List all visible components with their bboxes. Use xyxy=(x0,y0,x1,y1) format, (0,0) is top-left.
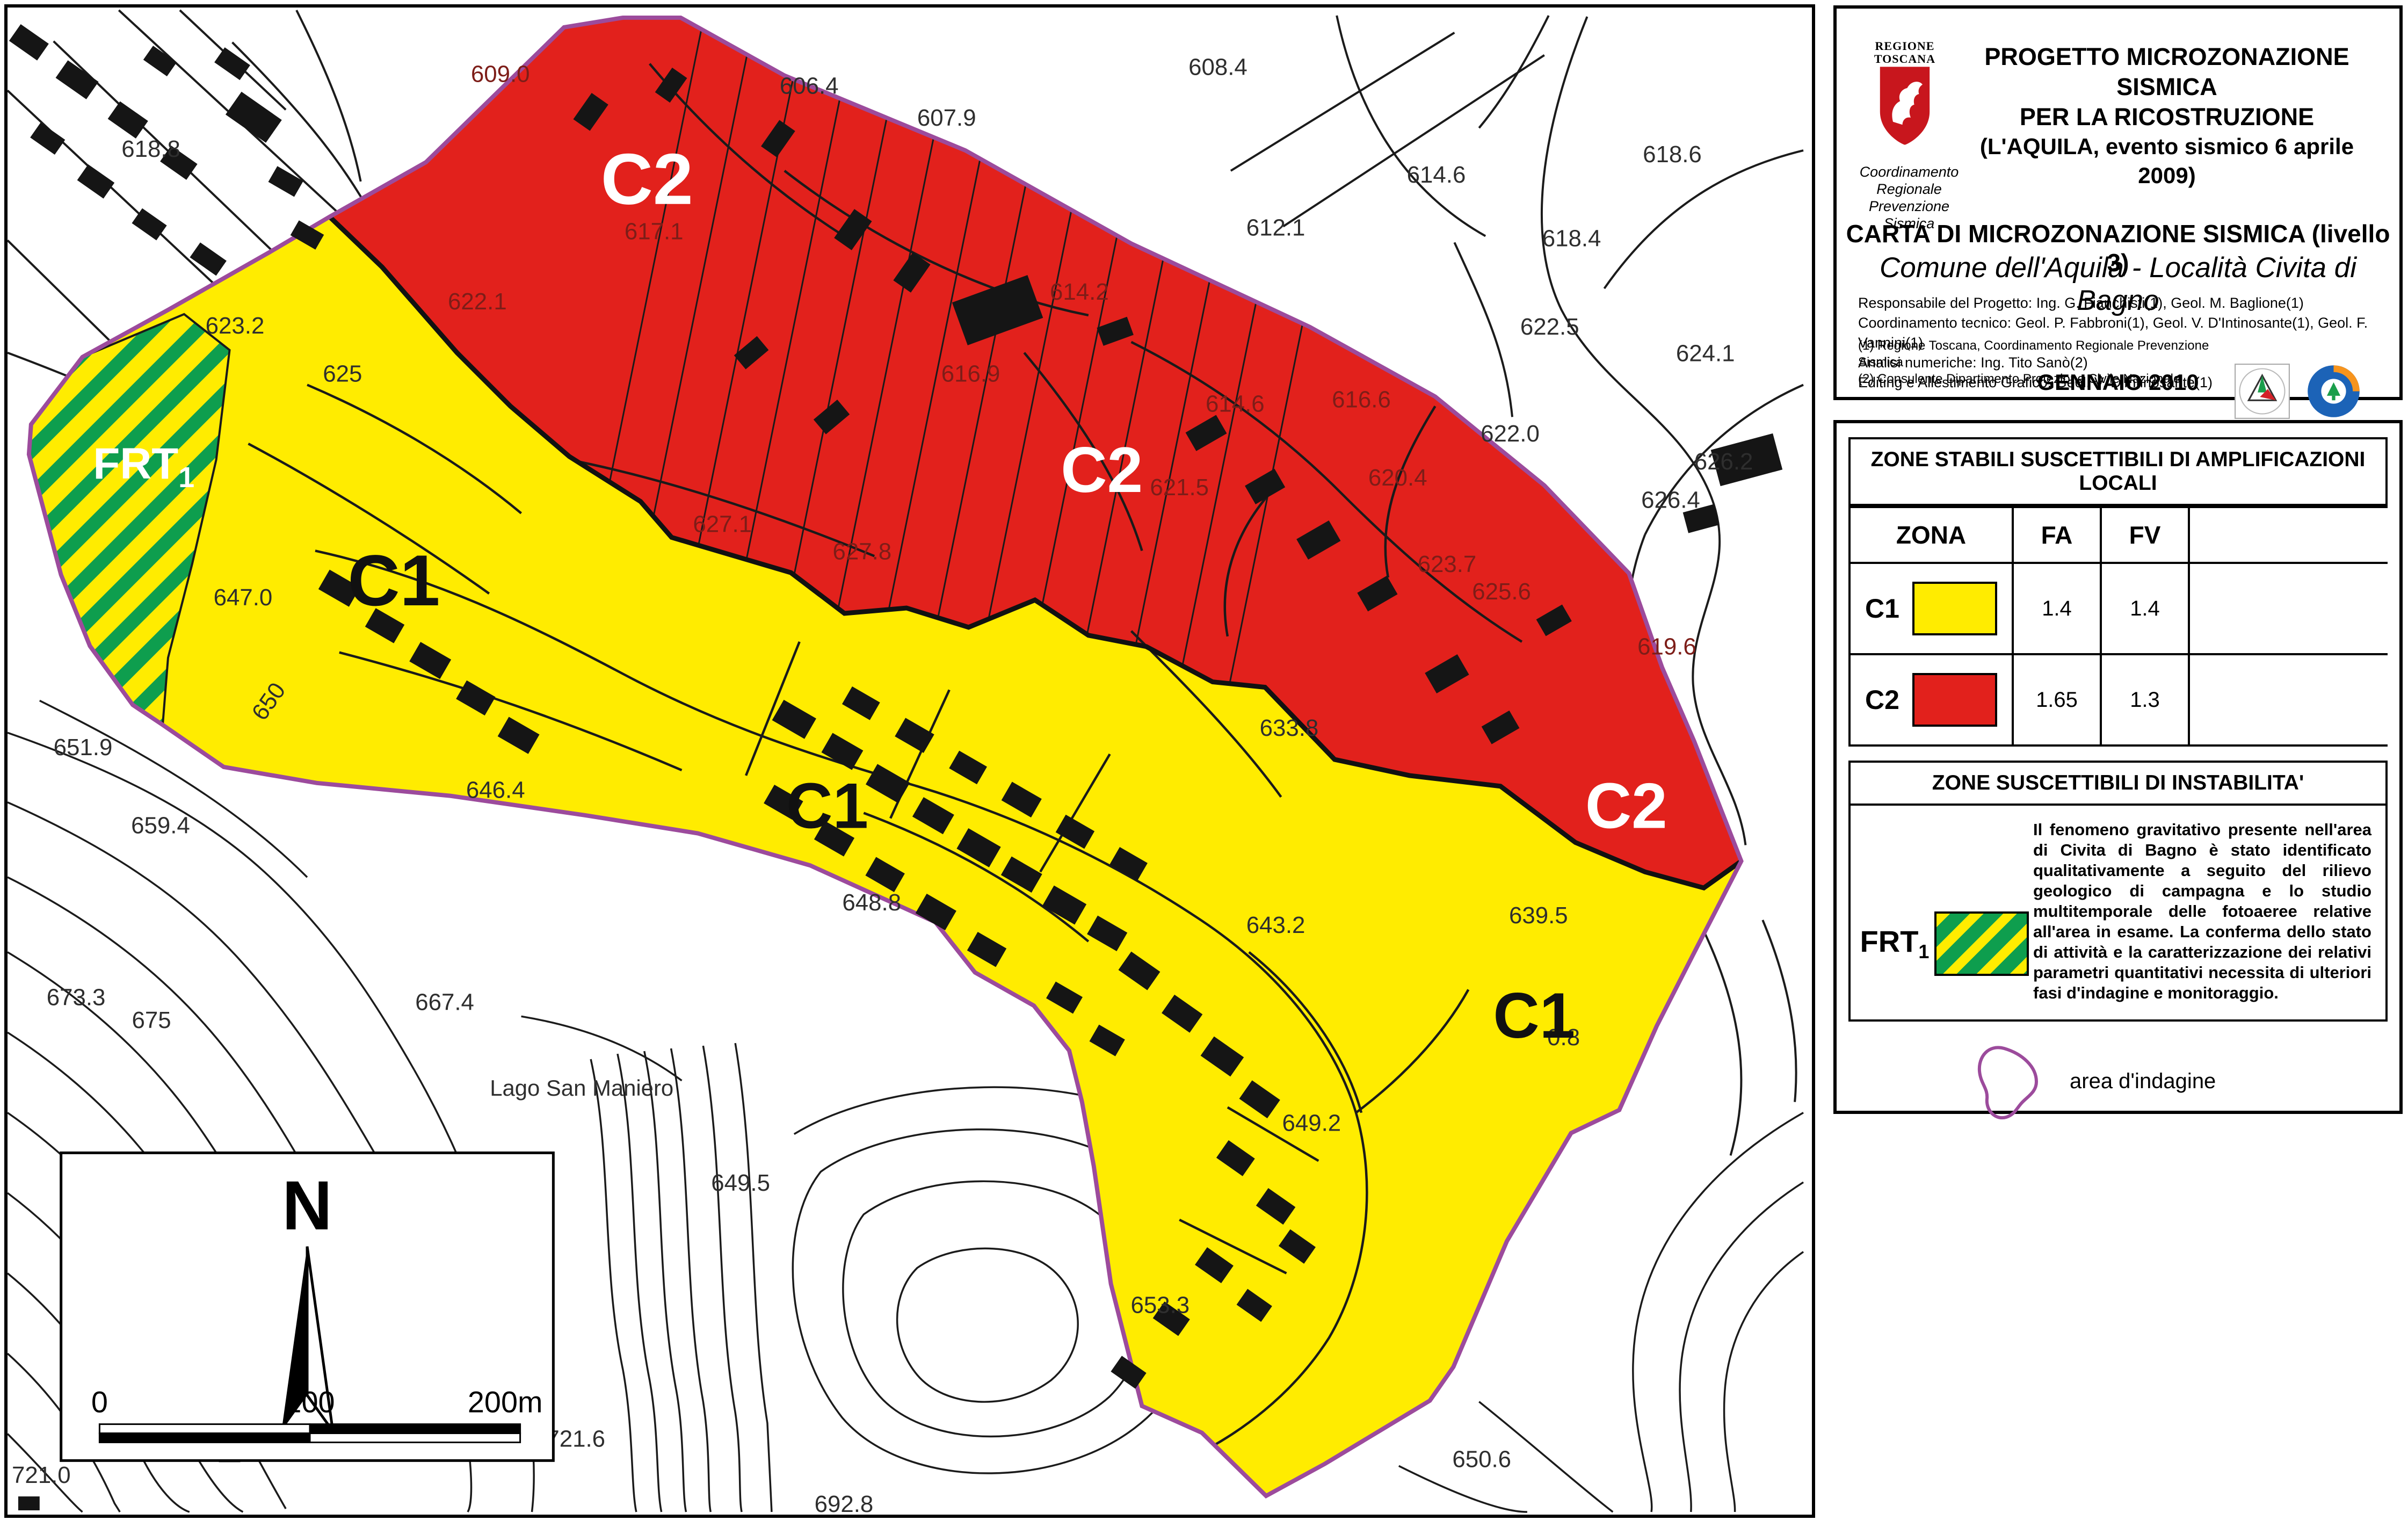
fa-value-c2: 1.65 xyxy=(2014,655,2102,744)
column-header-fv: FV xyxy=(2102,508,2190,562)
table-spacer xyxy=(2190,655,2388,744)
map-frame: 618.8 606.4 607.9 608.4 612.1 614.6 618.… xyxy=(4,4,1815,1518)
elevation-label: 607.9 xyxy=(917,105,976,131)
frt1-hatch-swatch xyxy=(1934,911,2029,976)
elevation-label: 616.6 xyxy=(1332,386,1391,412)
fa-value-c1: 1.4 xyxy=(2014,564,2102,653)
area-indagine-legend: area d'indagine xyxy=(1971,1041,2399,1121)
table-spacer xyxy=(2190,564,2388,653)
regione-toscana-name-line1: REGIONE xyxy=(1865,40,1945,53)
elevation-label: 627.1 xyxy=(693,511,752,538)
elevation-label: 650.6 xyxy=(1452,1446,1511,1472)
zone-label-c2: C2 xyxy=(601,139,693,220)
instability-description: Il fenomeno gravitativo presente nell'ar… xyxy=(2033,820,2376,1003)
elevation-label: 612.1 xyxy=(1246,214,1305,241)
column-header-fa: FA xyxy=(2014,508,2102,562)
elevation-label: 625 xyxy=(323,361,362,387)
elevation-label: 721.0 xyxy=(12,1462,71,1488)
frt1-code: FRT1 xyxy=(1860,924,1930,963)
scale-tick-0: 0 xyxy=(91,1385,108,1419)
elevation-label: 616.9 xyxy=(941,361,1000,387)
elevation-label: 647.0 xyxy=(214,584,273,611)
elevation-label: 608.4 xyxy=(1188,54,1247,81)
zone-c2-color-swatch xyxy=(1912,673,1997,727)
zone-label-c2: C2 xyxy=(1585,771,1667,842)
elevation-label: 625.6 xyxy=(1472,578,1531,605)
elevation-label: 622.5 xyxy=(1520,314,1579,340)
elevation-label: 651.9 xyxy=(54,734,113,761)
scale-tick-100: 100 xyxy=(285,1385,335,1419)
elevation-label: 649.5 xyxy=(711,1170,770,1196)
elevation-label: 623.2 xyxy=(206,313,265,339)
elevation-label: 653.3 xyxy=(1130,1292,1190,1318)
elevation-label: 619.6 xyxy=(1637,634,1696,660)
amplification-table-header-row: ZONA FA FV xyxy=(1851,508,2388,564)
footnote-line: (1) Regione Toscana, Coordinamento Regio… xyxy=(1858,337,2255,371)
amplification-table: ZONA FA FV C1 1.4 1.4 C2 1.65 xyxy=(1848,506,2388,747)
table-spacer xyxy=(2190,508,2388,562)
elevation-label: 633.8 xyxy=(1260,715,1319,741)
elevation-label: 643.2 xyxy=(1246,912,1305,938)
map-canvas: 618.8 606.4 607.9 608.4 612.1 614.6 618.… xyxy=(8,8,1812,1515)
elevation-label: 609.0 xyxy=(471,61,530,88)
north-scale-box: N 0 100 200m xyxy=(61,1153,554,1460)
zone-label-c1: C1 xyxy=(347,540,440,621)
elevation-label: 627.8 xyxy=(832,538,891,564)
elevation-label: 621.5 xyxy=(1150,474,1209,501)
elevation-label: 675 xyxy=(132,1007,171,1033)
project-title-line3: (L'AQUILA, evento sismico 6 aprile 2009) xyxy=(1952,132,2382,190)
elevation-label: 623.7 xyxy=(1418,551,1477,577)
title-panel: REGIONE TOSCANA PROGETTO MICROZONAZIONE … xyxy=(1833,5,2403,400)
frt1-legend-entry: FRT1 xyxy=(1856,820,2033,1003)
elevation-label: 618.8 xyxy=(121,136,180,162)
elevation-label: 624.1 xyxy=(1676,341,1735,367)
elevation-label: 618.4 xyxy=(1542,225,1601,251)
elevation-label: 646.4 xyxy=(466,777,525,804)
lake-name-label: Lago San Maniero xyxy=(490,1075,673,1101)
amplification-legend-header: ZONE STABILI SUSCETTIBILI DI AMPLIFICAZI… xyxy=(1848,437,2388,506)
elevation-label: 692.8 xyxy=(815,1491,874,1515)
zone-c1-color-swatch xyxy=(1912,582,1997,635)
coordination-line1: Coordinamento Regionale xyxy=(1853,163,1965,198)
instability-legend-header: ZONE SUSCETTIBILI DI INSTABILITA' xyxy=(1848,761,2388,806)
project-title-line1: PROGETTO MICROZONAZIONE SISMICA xyxy=(1952,42,2382,102)
elevation-label: 667.4 xyxy=(415,989,474,1015)
zone-label-c2: C2 xyxy=(1061,435,1143,506)
area-indagine-label: area d'indagine xyxy=(2070,1069,2216,1094)
legend-panel: ZONE STABILI SUSCETTIBILI DI AMPLIFICAZI… xyxy=(1833,420,2403,1114)
elevation-label: 617.1 xyxy=(625,218,684,244)
date-label: GENNAIO 2010 xyxy=(1837,370,2399,395)
area-indagine-outline-icon xyxy=(1971,1041,2051,1121)
elevation-label: 626.2 xyxy=(1694,448,1753,475)
fv-value-c2: 1.3 xyxy=(2102,655,2190,744)
regione-toscana-logo: REGIONE TOSCANA xyxy=(1865,40,1945,149)
elevation-label: 721.6 xyxy=(546,1425,605,1452)
elevation-label: 648.8 xyxy=(842,889,901,916)
instability-legend: ZONE SUSCETTIBILI DI INSTABILITA' FRT1 I… xyxy=(1837,761,2399,1022)
scale-tick-200: 200m xyxy=(468,1385,543,1419)
zone-code-c2: C2 xyxy=(1865,684,1899,715)
table-row: C2 1.65 1.3 xyxy=(1851,655,2388,747)
page: 618.8 606.4 607.9 608.4 612.1 614.6 618.… xyxy=(0,0,2408,1520)
credit-line: Responsabile del Progetto: Ing. G. Fianc… xyxy=(1858,293,2390,313)
elevation-label: 606.4 xyxy=(780,73,839,99)
elevation-label: 649.2 xyxy=(1282,1110,1341,1137)
column-header-zona: ZONA xyxy=(1851,508,2014,562)
instability-legend-body: FRT1 Il fenomeno gravitativo presente ne… xyxy=(1848,806,2388,1022)
project-title-line2: PER LA RICOSTRUZIONE xyxy=(1952,102,2382,132)
fv-value-c1: 1.4 xyxy=(2102,564,2190,653)
elevation-label: 622.0 xyxy=(1481,421,1540,447)
regione-toscana-shield-icon xyxy=(1875,66,1934,146)
elevation-label: 673.3 xyxy=(47,984,106,1010)
elevation-label: 626.4 xyxy=(1641,487,1700,513)
zone-label-c1: C1 xyxy=(786,771,868,842)
elevation-label: 614.2 xyxy=(1050,279,1109,305)
elevation-label: 622.1 xyxy=(448,288,507,315)
elevation-label: 614.6 xyxy=(1206,390,1265,417)
zone-code-c1: C1 xyxy=(1865,593,1899,624)
elevation-label: 614.6 xyxy=(1407,162,1466,188)
elevation-label: 620.4 xyxy=(1368,465,1427,491)
project-title: PROGETTO MICROZONAZIONE SISMICA PER LA R… xyxy=(1952,42,2382,190)
north-label: N xyxy=(282,1167,332,1244)
zone-label-c1: C1 xyxy=(1493,980,1575,1052)
elevation-label: 639.5 xyxy=(1509,902,1568,929)
elevation-label: 618.6 xyxy=(1643,141,1702,168)
table-row: C1 1.4 1.4 xyxy=(1851,564,2388,655)
elevation-label: 659.4 xyxy=(131,813,190,839)
regione-toscana-name-line2: TOSCANA xyxy=(1865,53,1945,66)
